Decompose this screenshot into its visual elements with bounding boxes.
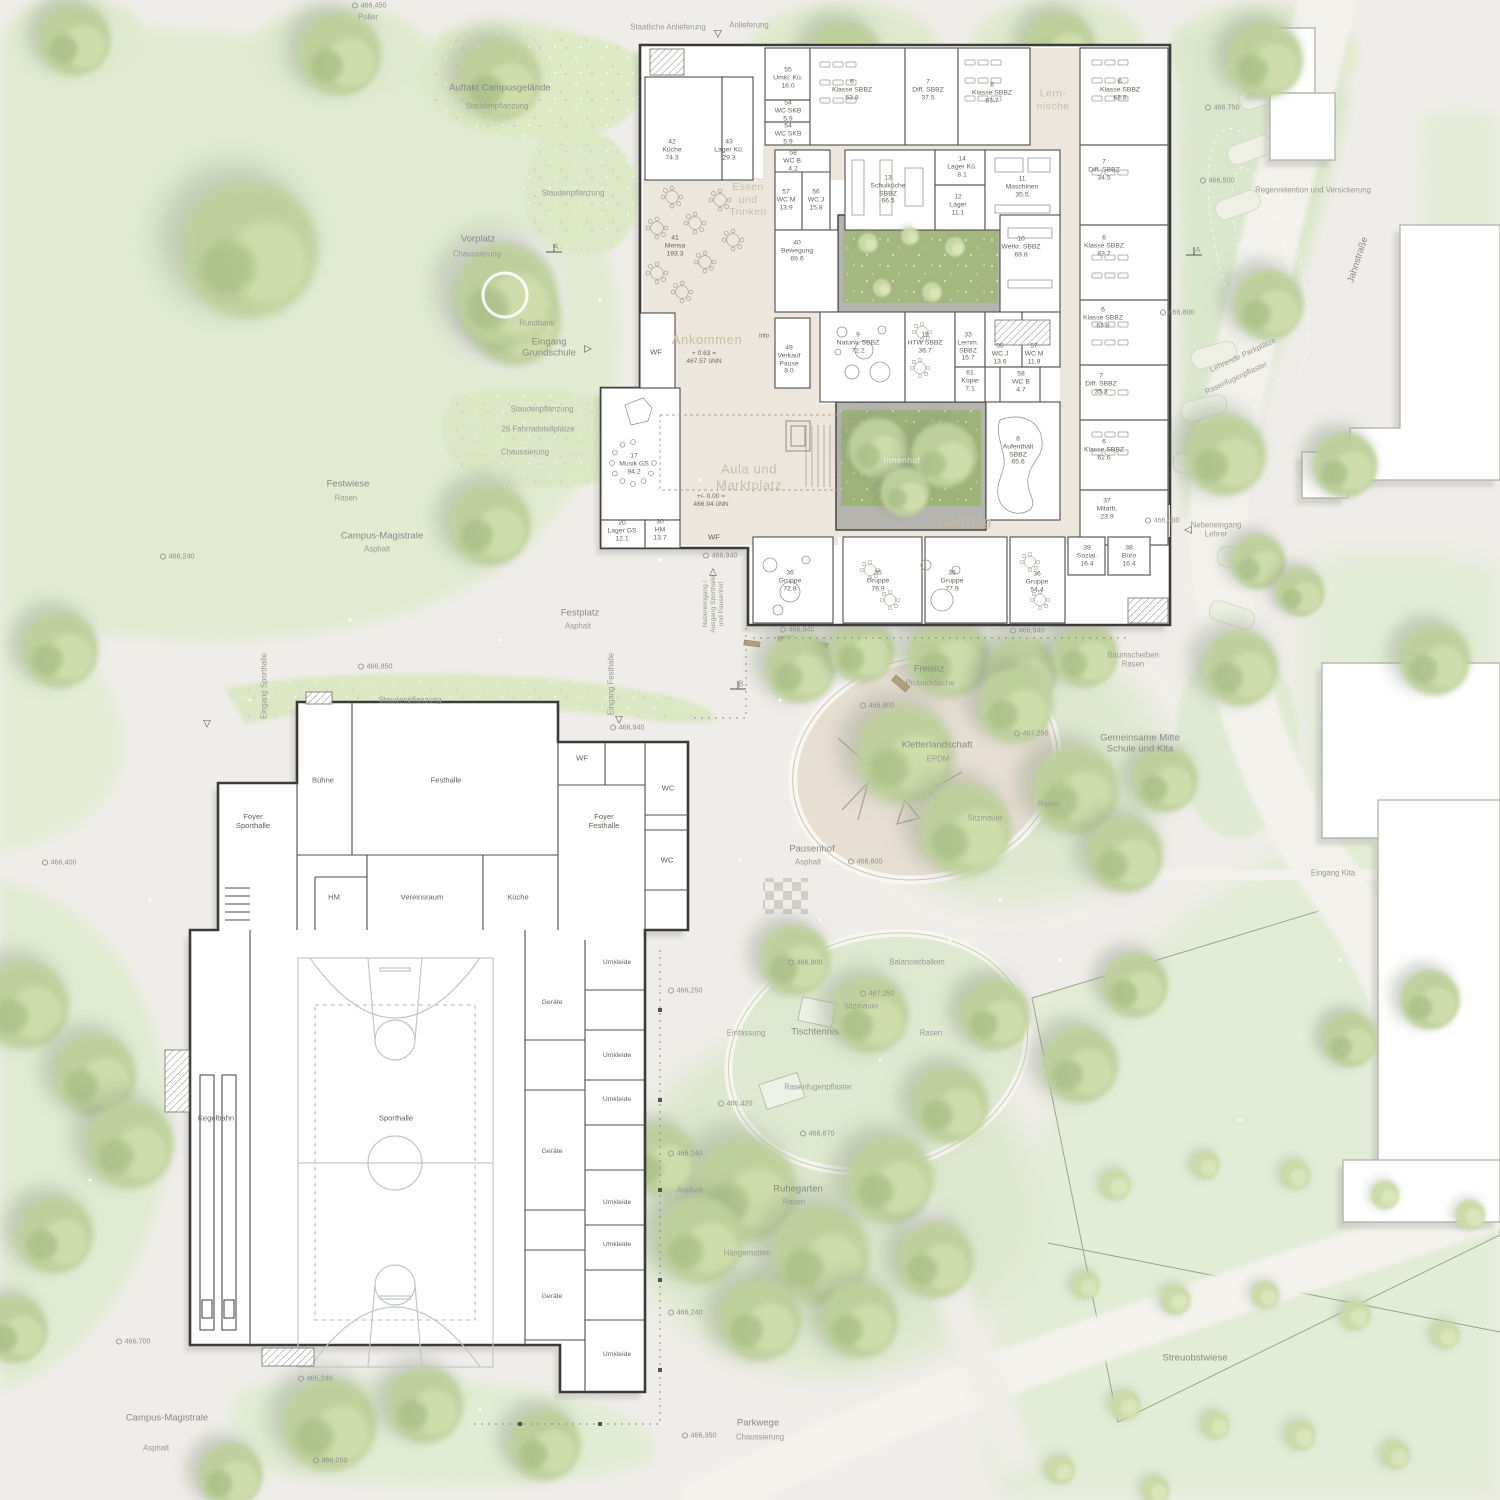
checker-paving bbox=[763, 878, 808, 914]
sports-building bbox=[165, 692, 688, 1426]
plan-drawing bbox=[0, 0, 1500, 1500]
site-plan: Lern- nische Essen und Trinken Ankommen … bbox=[0, 0, 1500, 1500]
sports-outline bbox=[190, 702, 688, 1392]
